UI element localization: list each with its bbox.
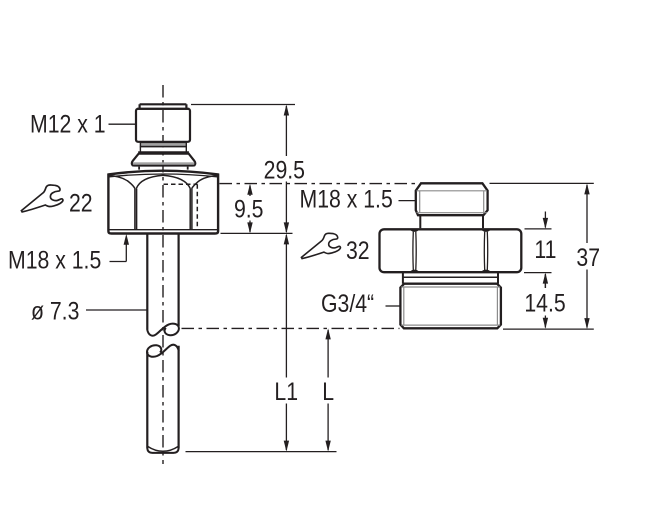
svg-text:L1: L1 (274, 377, 298, 405)
svg-text:G3/4“: G3/4“ (321, 289, 374, 317)
svg-text:37: 37 (576, 243, 600, 271)
svg-text:M18 x 1.5: M18 x 1.5 (8, 246, 101, 274)
svg-text:14.5: 14.5 (524, 289, 565, 317)
svg-text:M18 x 1.5: M18 x 1.5 (300, 185, 393, 213)
svg-text:M12 x 1: M12 x 1 (30, 110, 106, 138)
svg-text:22: 22 (69, 189, 93, 217)
svg-text:11: 11 (534, 236, 556, 264)
svg-text:L: L (322, 377, 334, 405)
svg-text:ø 7.3: ø 7.3 (31, 297, 79, 325)
svg-text:29.5: 29.5 (264, 156, 305, 184)
svg-text:32: 32 (346, 236, 370, 264)
svg-text:9.5: 9.5 (234, 195, 264, 223)
